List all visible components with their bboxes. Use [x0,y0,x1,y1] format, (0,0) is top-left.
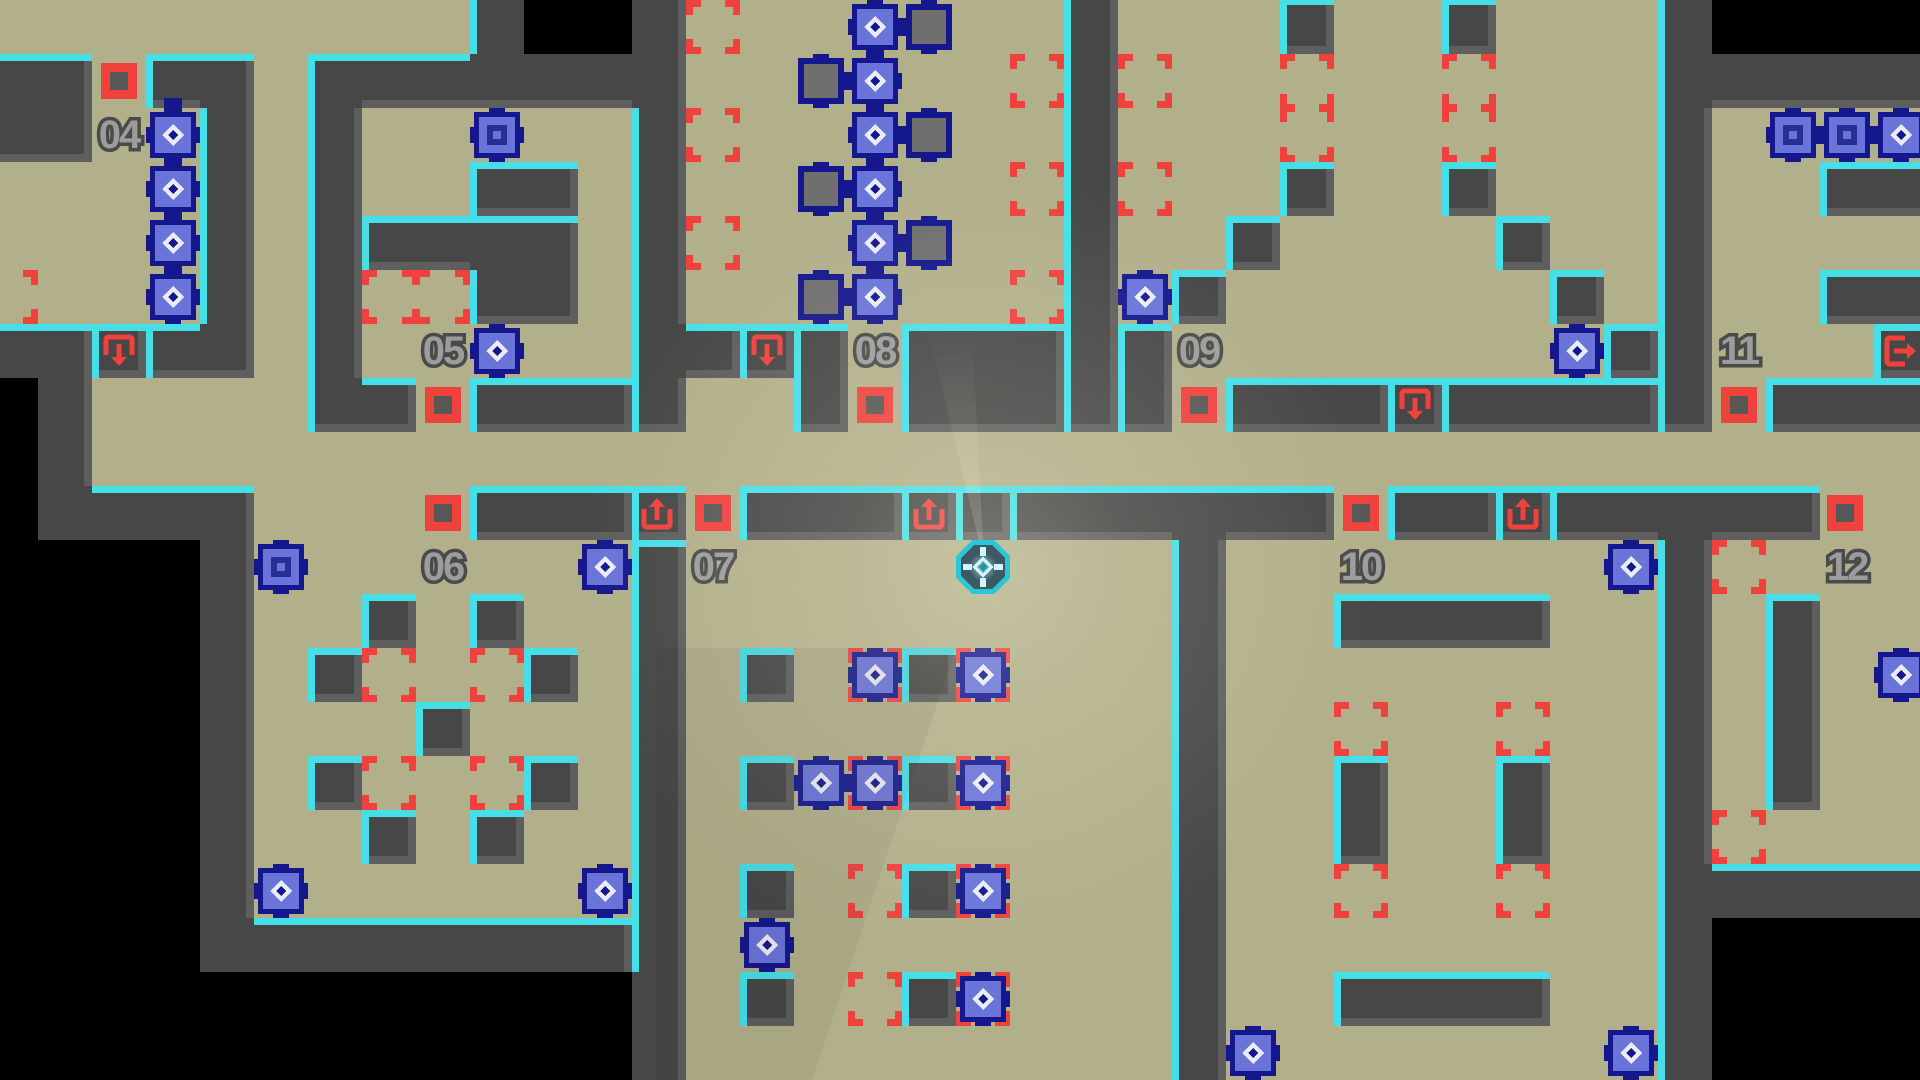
svg-text:06: 06 [423,545,464,589]
svg-text:11: 11 [1720,329,1760,373]
svg-text:05: 05 [423,329,465,373]
svg-text:04: 04 [99,113,142,157]
svg-text:12: 12 [1827,545,1868,589]
